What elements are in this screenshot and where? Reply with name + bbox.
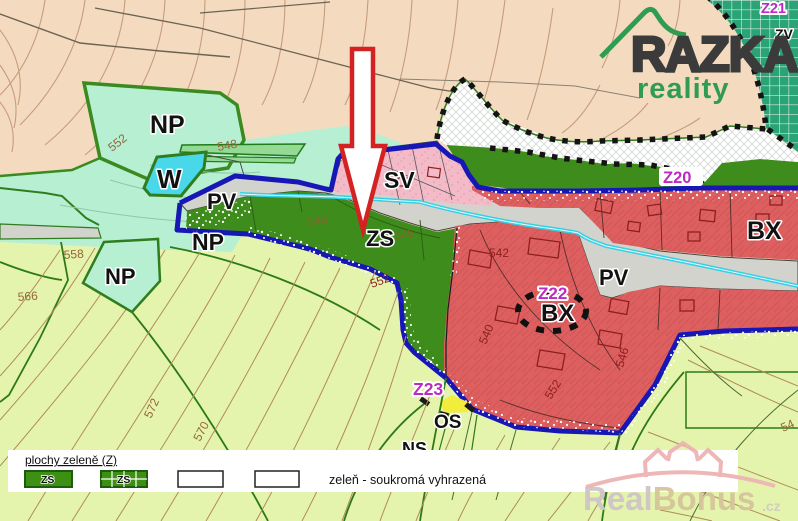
svg-text:PV: PV [207, 189, 237, 214]
svg-text:Z23: Z23 [413, 379, 443, 399]
svg-text:ZS: ZS [117, 474, 130, 486]
svg-text:Z20: Z20 [663, 169, 691, 187]
svg-text:OS: OS [434, 412, 461, 433]
svg-text:542: 542 [489, 246, 509, 260]
svg-text:NP: NP [192, 229, 224, 255]
svg-text:558: 558 [63, 247, 84, 262]
svg-text:PV: PV [599, 265, 629, 290]
svg-text:NP: NP [105, 264, 136, 289]
svg-text:BX: BX [541, 300, 574, 327]
svg-text:548: 548 [307, 213, 329, 229]
svg-text:NP: NP [150, 111, 185, 139]
svg-text:Z22: Z22 [538, 284, 567, 303]
svg-text:Z21: Z21 [761, 1, 786, 17]
svg-text:SV: SV [384, 167, 415, 193]
svg-text:zeleň - soukromá vyhrazená: zeleň - soukromá vyhrazená [329, 473, 486, 487]
svg-text:ZS: ZS [366, 226, 394, 251]
svg-text:reality: reality [637, 73, 729, 105]
svg-text:RealBonus: RealBonus [583, 480, 755, 517]
svg-text:BX: BX [747, 217, 782, 245]
svg-text:W: W [157, 164, 182, 194]
svg-text:566: 566 [17, 289, 38, 304]
svg-text:.cz: .cz [762, 498, 781, 514]
svg-text:plochy zeleně (Z): plochy zeleně (Z) [25, 453, 117, 467]
svg-text:ZS: ZS [41, 474, 54, 486]
